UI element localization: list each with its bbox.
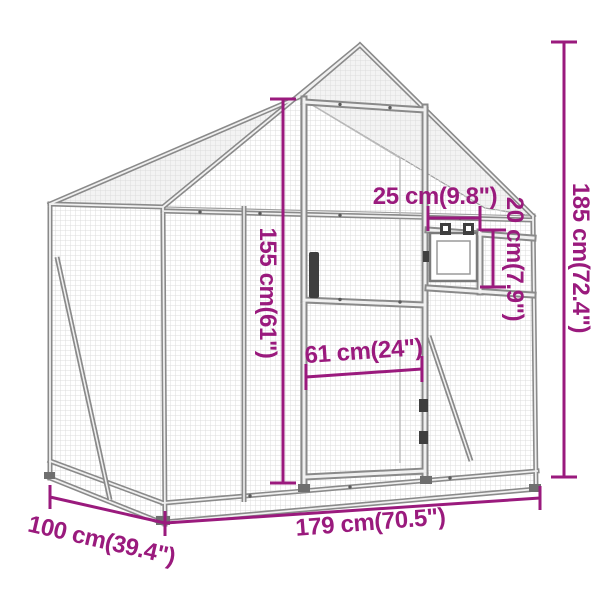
window-jamb-latch [423, 251, 429, 262]
window-panel-inner [437, 241, 470, 274]
door-hinge [419, 399, 428, 412]
dim-label-overall-height: 185 cm(72.4") [567, 183, 594, 333]
door-handle [309, 252, 319, 298]
dim-label-door-height: 155 cm(61") [254, 227, 281, 358]
dimension-diagram: 155 cm(61") 185 cm(72.4") 25 cm(9.8") 20… [0, 0, 600, 600]
left-wall-panel [50, 204, 165, 524]
door-hinge [419, 431, 428, 444]
aviary-structure [44, 45, 541, 525]
dim-overall-height: 185 cm(72.4") [551, 42, 594, 477]
dim-label-window-width: 25 cm(9.8") [373, 183, 497, 210]
dim-label-window-height: 20 cm(7.9") [501, 197, 528, 321]
